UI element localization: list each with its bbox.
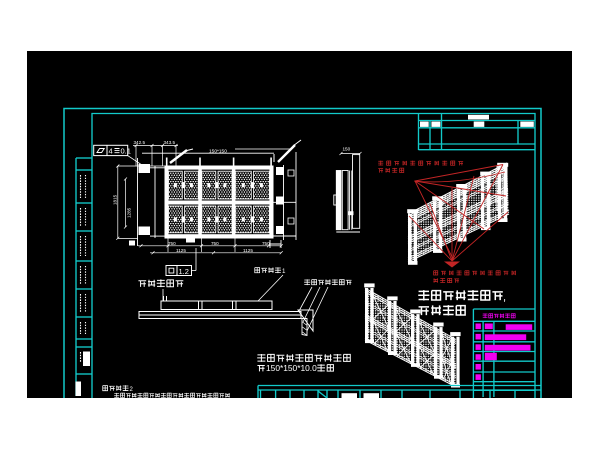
svg-text:150: 150 [343,147,351,152]
svg-text:0.1: 0.1 [121,147,131,156]
svg-text:750: 750 [168,241,176,246]
svg-text:1125: 1125 [176,248,186,253]
svg-text:342.5: 342.5 [134,140,146,145]
svg-text:343.5: 343.5 [164,140,176,145]
svg-text:,: , [503,292,506,304]
svg-text:1: 1 [282,268,286,275]
svg-text:1125: 1125 [243,248,253,253]
svg-text:750: 750 [262,241,270,246]
svg-text:4: 4 [109,147,113,156]
svg-text:1815: 1815 [113,194,118,205]
svg-text:750: 750 [211,241,219,246]
svg-text:150*150*10.0: 150*150*10.0 [266,363,317,373]
svg-text:1285: 1285 [127,207,132,218]
svg-text:1.2: 1.2 [179,267,189,276]
svg-text:150*150: 150*150 [209,148,227,154]
